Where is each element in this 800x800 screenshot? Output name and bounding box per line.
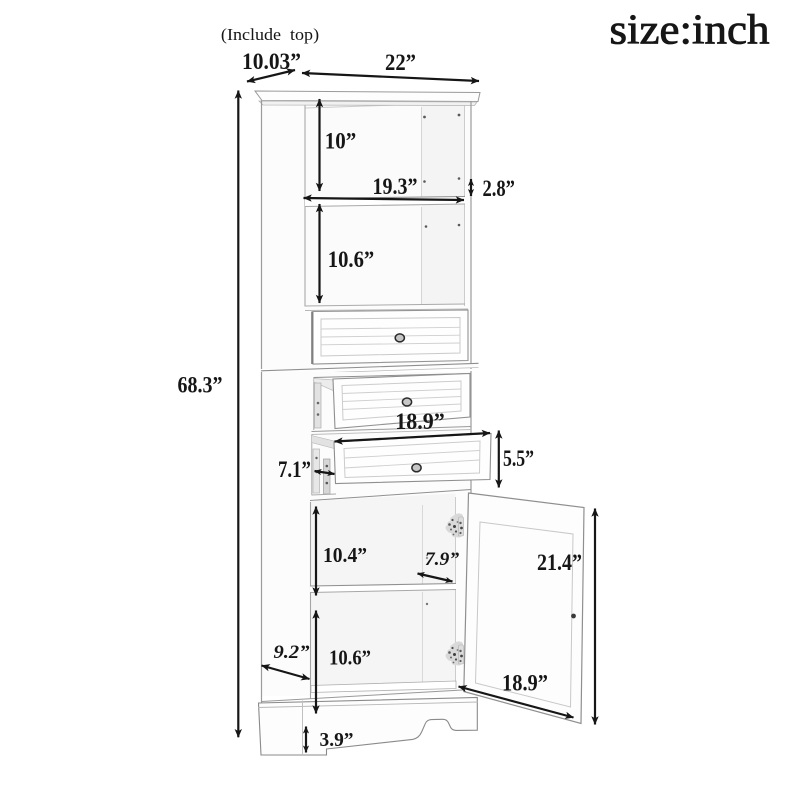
svg-text:18.9”: 18.9” — [395, 408, 444, 434]
svg-text:68.3”: 68.3” — [178, 372, 223, 398]
svg-text:21.4”: 21.4” — [537, 550, 582, 576]
svg-text:10.03”: 10.03” — [242, 48, 301, 74]
svg-text:5.5”: 5.5” — [503, 445, 534, 472]
svg-text:2.8”: 2.8” — [482, 175, 514, 202]
svg-text:10.4”: 10.4” — [323, 544, 367, 567]
svg-text:10.6”: 10.6” — [328, 246, 374, 273]
svg-text:(Include top): (Include top) — [221, 24, 319, 43]
svg-text:10.6”: 10.6” — [329, 646, 371, 669]
svg-text:19.3”: 19.3” — [373, 174, 418, 200]
svg-text:10”: 10” — [325, 127, 356, 153]
svg-text:18.9”: 18.9” — [502, 669, 548, 696]
svg-text:22”: 22” — [385, 49, 416, 76]
svg-text:size:inch: size:inch — [610, 7, 770, 53]
svg-text:9.2”: 9.2” — [274, 643, 310, 663]
svg-text:7.9”: 7.9” — [425, 549, 459, 570]
svg-text:7.1”: 7.1” — [278, 456, 311, 482]
svg-text:3.9”: 3.9” — [320, 729, 354, 751]
